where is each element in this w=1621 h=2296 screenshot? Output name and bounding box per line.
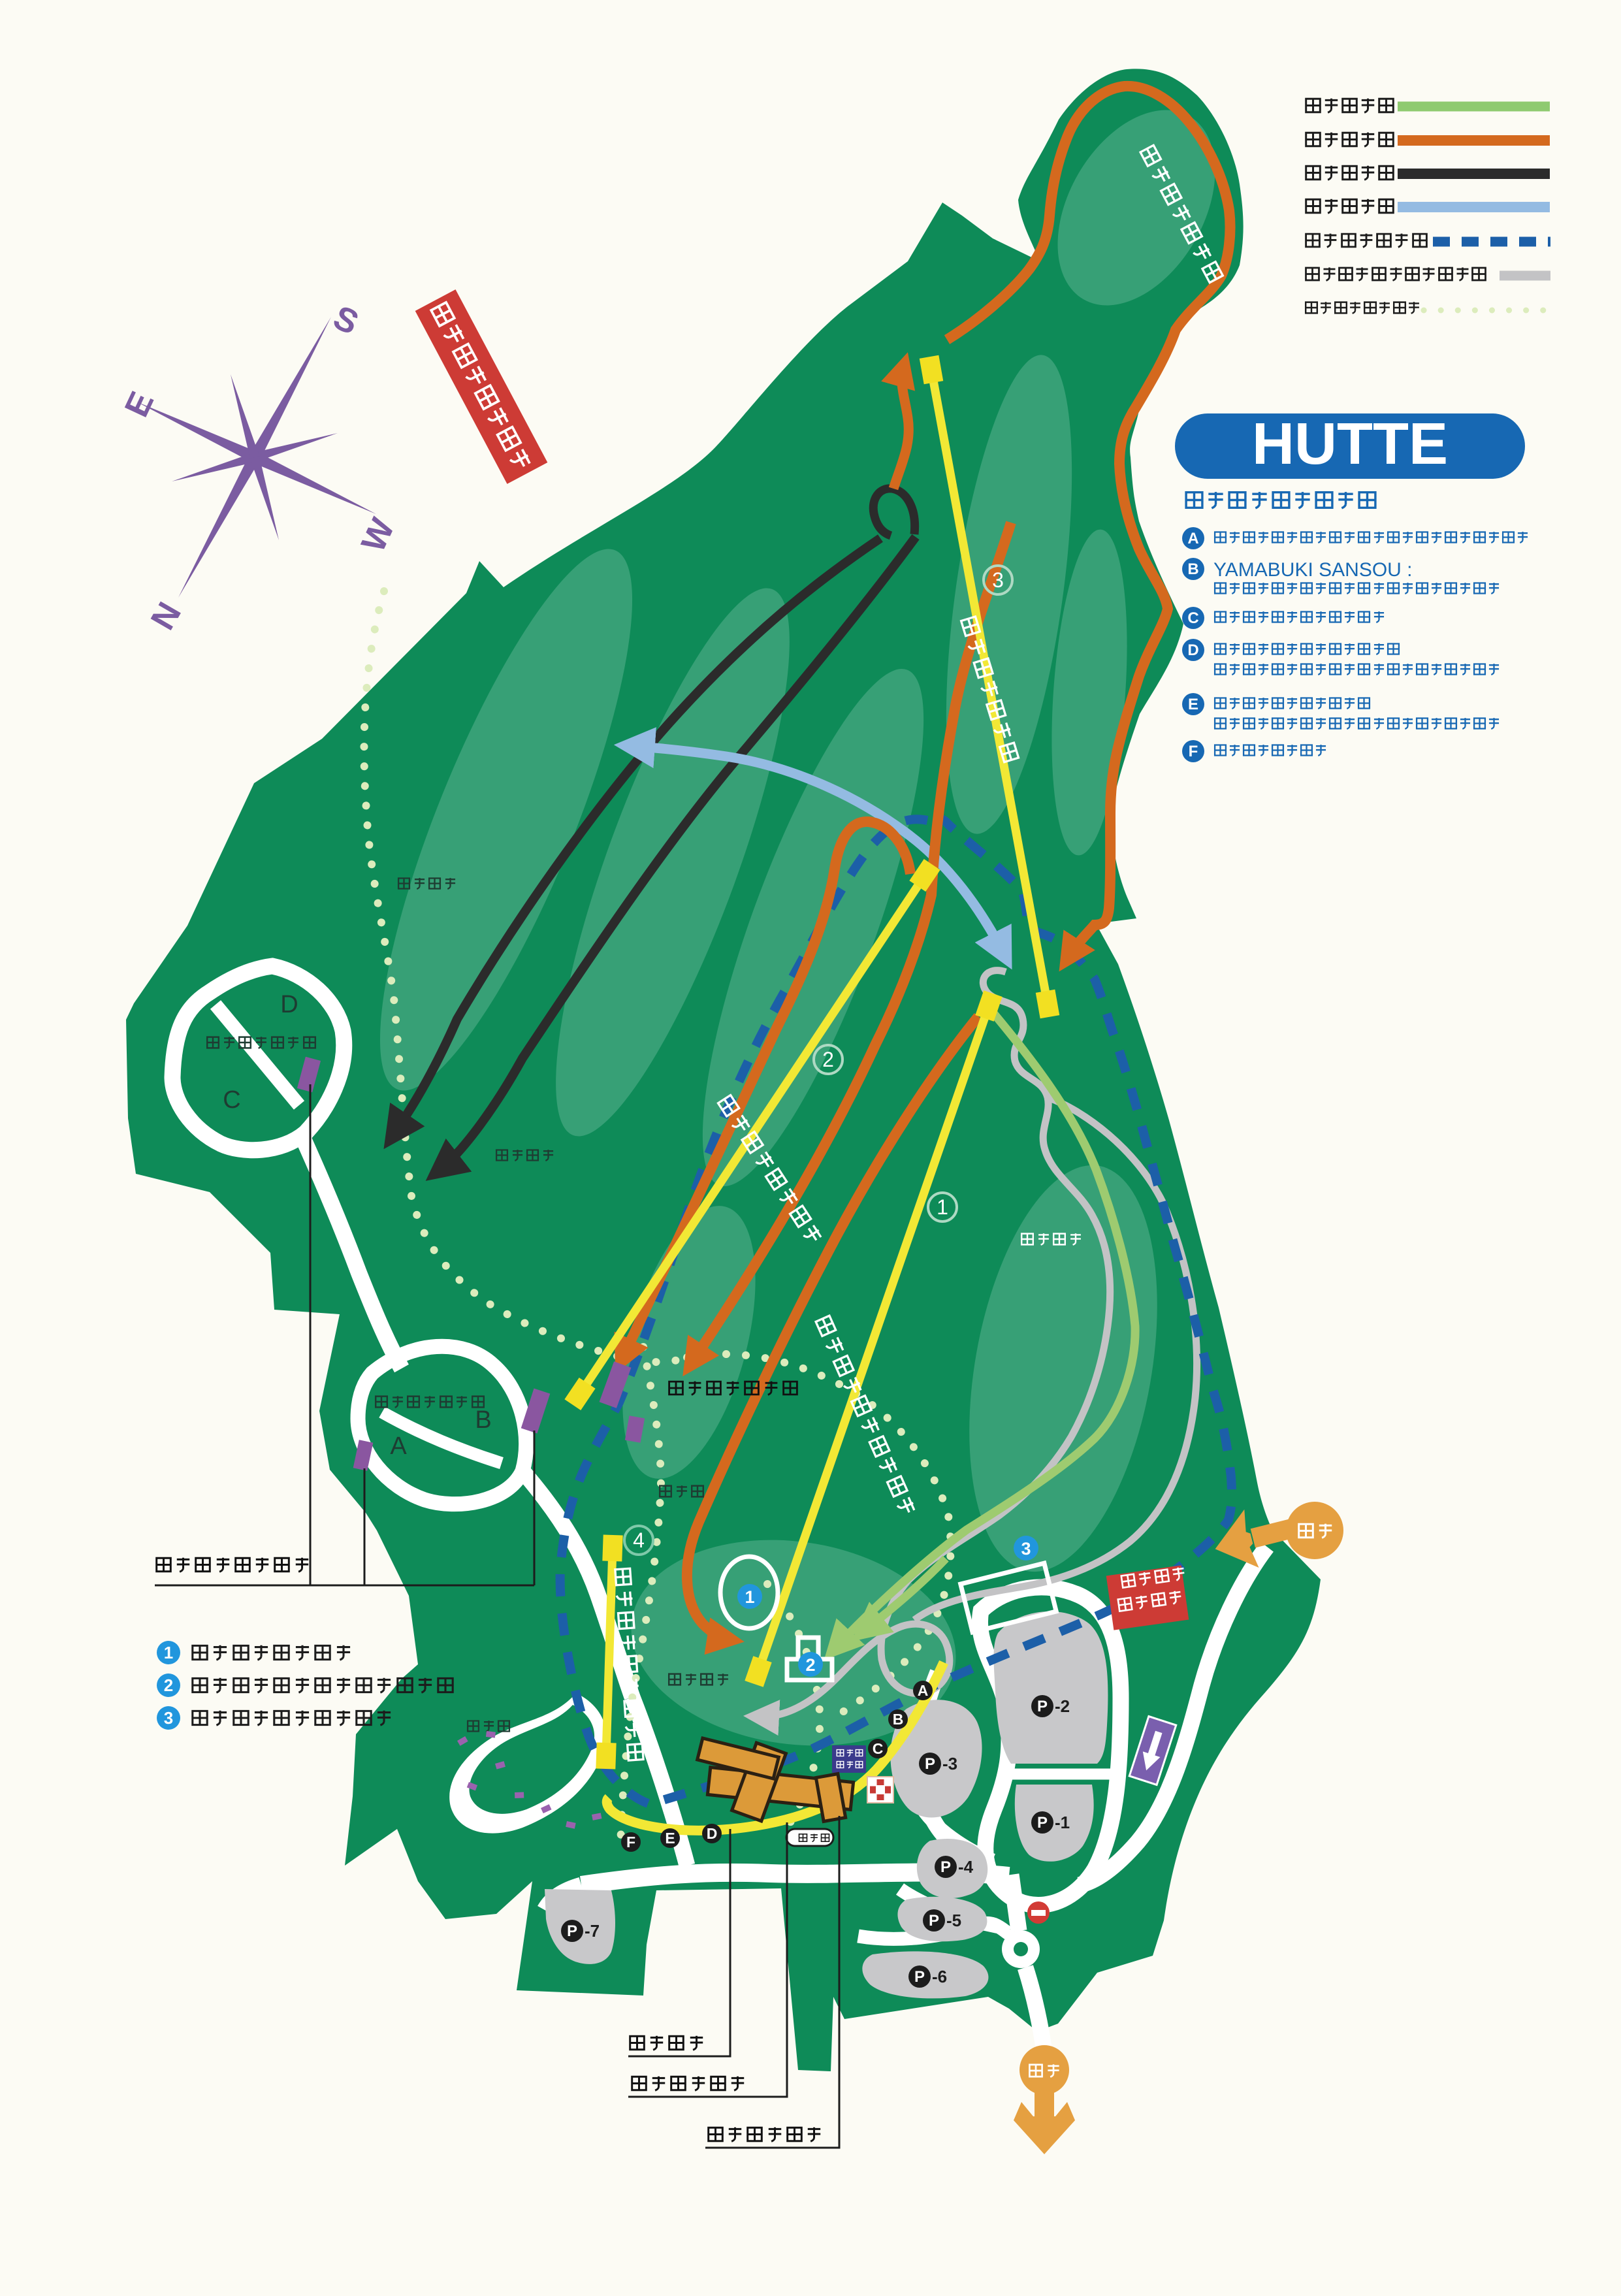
svg-text:A: A bbox=[1187, 530, 1198, 547]
svg-text:A: A bbox=[918, 1682, 929, 1699]
svg-text:2: 2 bbox=[805, 1655, 815, 1675]
svg-text:F: F bbox=[1189, 743, 1198, 760]
svg-text:E: E bbox=[1188, 696, 1198, 713]
svg-text:1: 1 bbox=[164, 1643, 173, 1662]
svg-text:P: P bbox=[1037, 1698, 1048, 1715]
svg-text:D: D bbox=[1187, 641, 1198, 659]
svg-text:P: P bbox=[914, 1968, 925, 1986]
svg-text:A: A bbox=[390, 1432, 407, 1460]
svg-text:HUTTE: HUTTE bbox=[1252, 412, 1448, 477]
svg-text:D: D bbox=[707, 1825, 718, 1842]
svg-text:B: B bbox=[893, 1711, 904, 1728]
svg-text:3: 3 bbox=[164, 1708, 173, 1728]
svg-text:P: P bbox=[1037, 1814, 1048, 1832]
svg-text:3: 3 bbox=[992, 568, 1004, 592]
svg-text:4: 4 bbox=[633, 1528, 645, 1552]
svg-text:B: B bbox=[475, 1406, 491, 1434]
svg-text:C: C bbox=[223, 1086, 240, 1114]
svg-text:P: P bbox=[567, 1922, 577, 1940]
svg-text:C: C bbox=[873, 1740, 884, 1757]
svg-text:1: 1 bbox=[937, 1195, 948, 1219]
svg-text:C: C bbox=[1187, 609, 1198, 627]
svg-text:3: 3 bbox=[1021, 1539, 1031, 1559]
svg-text:P: P bbox=[929, 1912, 939, 1930]
svg-text:YAMABUKI SANSOU :: YAMABUKI SANSOU : bbox=[1213, 559, 1413, 581]
svg-text:-2: -2 bbox=[1055, 1696, 1070, 1716]
svg-text:1: 1 bbox=[745, 1587, 754, 1607]
svg-text:B: B bbox=[1187, 560, 1198, 578]
svg-text:P: P bbox=[940, 1858, 951, 1876]
svg-text:-1: -1 bbox=[1055, 1813, 1070, 1832]
svg-text:P: P bbox=[925, 1755, 935, 1773]
svg-text:-7: -7 bbox=[585, 1921, 600, 1941]
svg-text:-3: -3 bbox=[942, 1754, 957, 1773]
svg-text:-4: -4 bbox=[958, 1857, 974, 1877]
svg-text:D: D bbox=[280, 991, 298, 1018]
svg-text:-5: -5 bbox=[946, 1911, 961, 1930]
svg-text:-6: -6 bbox=[932, 1967, 947, 1986]
svg-text:2: 2 bbox=[822, 1048, 834, 1071]
svg-text:F: F bbox=[626, 1834, 635, 1851]
svg-text:E: E bbox=[665, 1830, 675, 1847]
svg-text:2: 2 bbox=[164, 1675, 173, 1695]
